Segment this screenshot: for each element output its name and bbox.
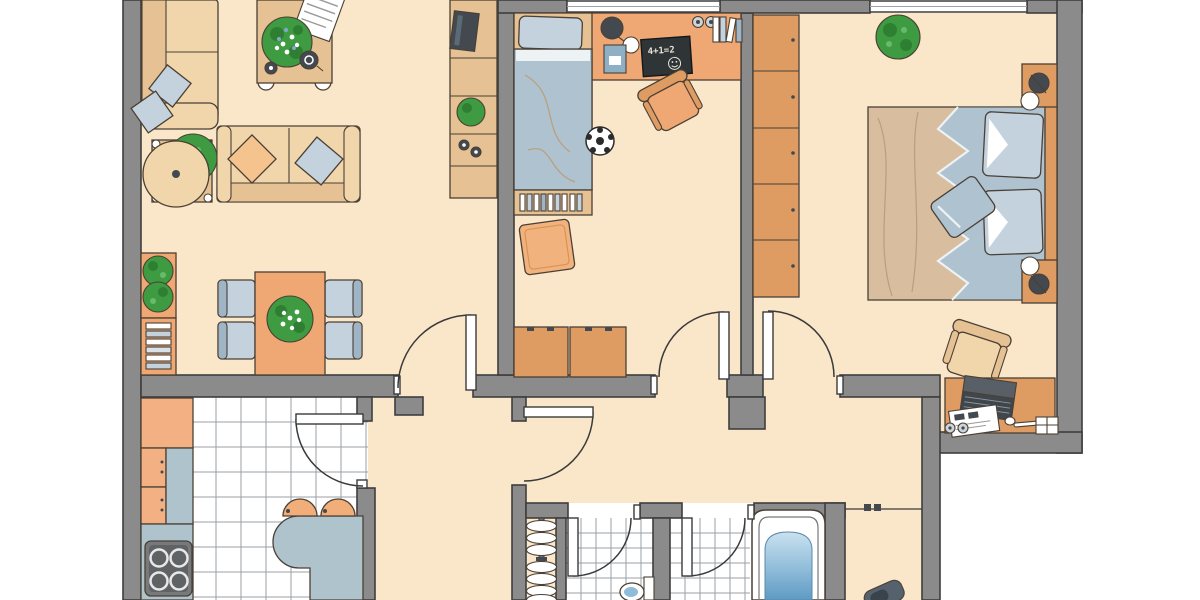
window-bedroom <box>870 1 1027 12</box>
wall-wc-left <box>556 518 566 600</box>
wall-left <box>123 0 141 600</box>
bed-blanket <box>514 49 592 190</box>
wall-main-b <box>473 375 655 397</box>
wall-top-2 <box>720 0 870 13</box>
laptop-desk <box>945 376 1058 438</box>
floor-plan-canvas: 4+1=2 <box>0 0 1200 600</box>
dining-chair <box>325 322 362 359</box>
corner-cabinet <box>141 398 193 448</box>
wall-bath-right <box>825 503 845 600</box>
wall-living-kids <box>498 0 514 375</box>
wall-corridor-right <box>922 397 940 600</box>
jamb <box>748 505 754 519</box>
pier-living-door <box>395 397 423 415</box>
wall-wc-bath-divider <box>653 518 670 600</box>
flower-bouquet <box>267 296 313 342</box>
base-cabinet <box>141 448 166 487</box>
wall-bath-top-2 <box>640 503 682 518</box>
nightstand-bottom <box>1021 257 1057 303</box>
mouse <box>1005 417 1015 425</box>
bookshelf <box>141 318 176 375</box>
floor-cushion <box>519 219 575 275</box>
window-kids-room <box>567 1 720 12</box>
wall-main-d <box>840 375 940 397</box>
dining-chair <box>218 280 255 317</box>
jamb <box>634 505 640 519</box>
coffee-table <box>257 0 345 90</box>
jamb <box>837 376 843 394</box>
plant-shelf <box>141 253 176 318</box>
soccer-ball <box>586 127 614 155</box>
floor-plan: 4+1=2 <box>0 0 1200 600</box>
two-seat-sofa <box>217 126 360 202</box>
wall-bath-top-1 <box>526 503 568 518</box>
single-bed <box>514 13 592 190</box>
wall-top-1 <box>498 0 567 13</box>
drawer-chests <box>514 327 626 377</box>
tv <box>450 11 479 52</box>
bathtub <box>752 510 825 600</box>
jamb <box>357 480 367 488</box>
dining-chair <box>218 322 255 359</box>
nightstand-top <box>1021 64 1057 110</box>
wall-sofa <box>131 0 218 133</box>
cup <box>300 51 318 69</box>
wall-kids-bedroom <box>741 13 753 375</box>
box <box>1036 417 1058 434</box>
bed-pillow <box>518 16 582 50</box>
wall-main-a <box>141 375 398 397</box>
plant <box>457 98 485 126</box>
dining-chair <box>325 280 362 317</box>
wall-hall-stub-bottom <box>512 485 526 600</box>
dining-set <box>218 272 362 375</box>
plant <box>876 15 920 59</box>
bed-pillow <box>982 112 1043 179</box>
blackboard-text: 4+1=2 <box>647 45 675 57</box>
wall-main-c <box>727 375 763 397</box>
wardrobe <box>753 15 799 297</box>
base-cabinet <box>141 487 166 524</box>
wall-right <box>1057 0 1082 453</box>
counter <box>166 448 193 524</box>
jamb <box>651 376 657 394</box>
side-table <box>143 134 217 207</box>
stove <box>145 541 192 596</box>
pier-bedroom-doors <box>729 397 765 429</box>
bed-foot-shelf <box>514 190 592 215</box>
bed-pillow <box>983 189 1043 255</box>
tv-sideboard <box>450 0 497 198</box>
